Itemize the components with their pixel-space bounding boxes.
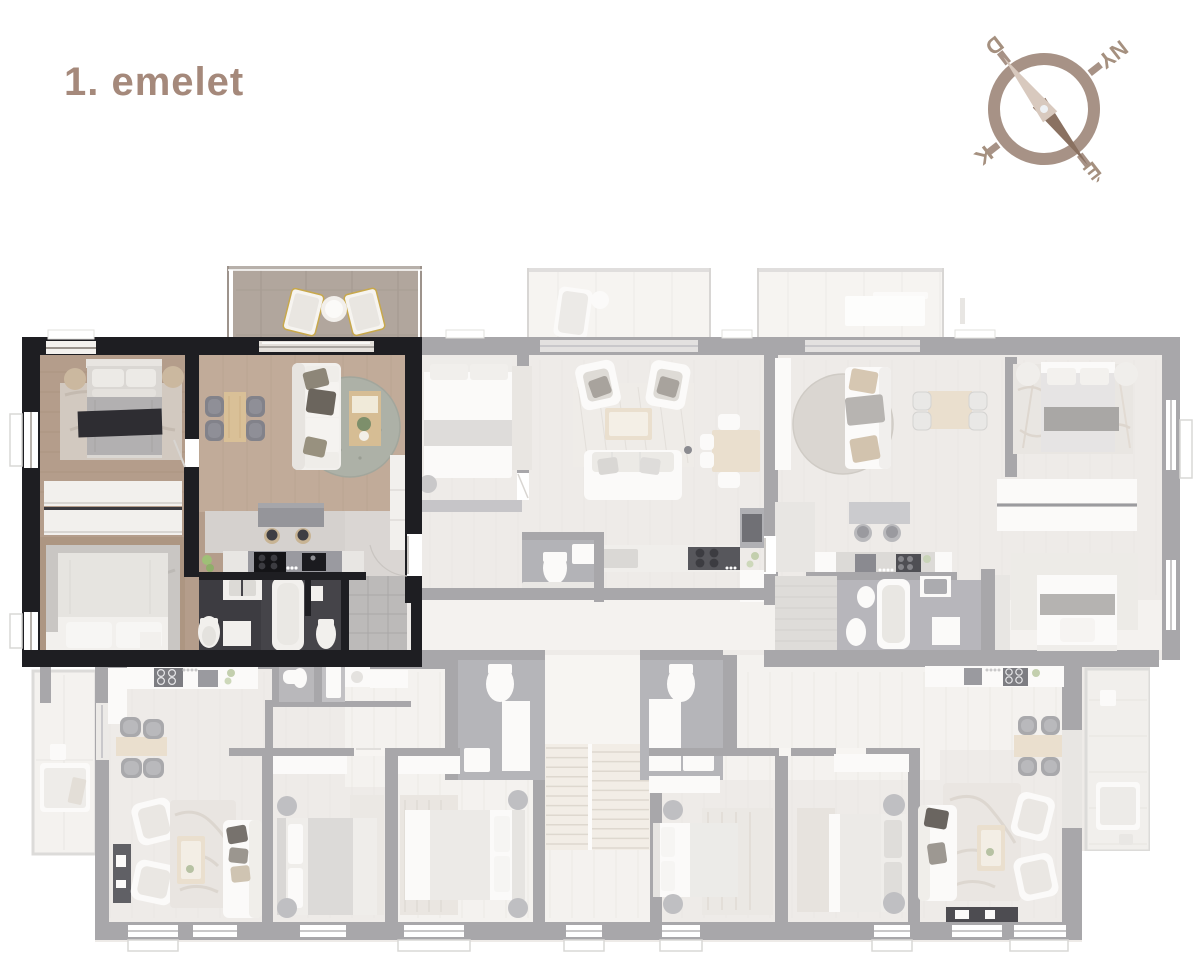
svg-text:1. emelet: 1. emelet [64,60,244,104]
